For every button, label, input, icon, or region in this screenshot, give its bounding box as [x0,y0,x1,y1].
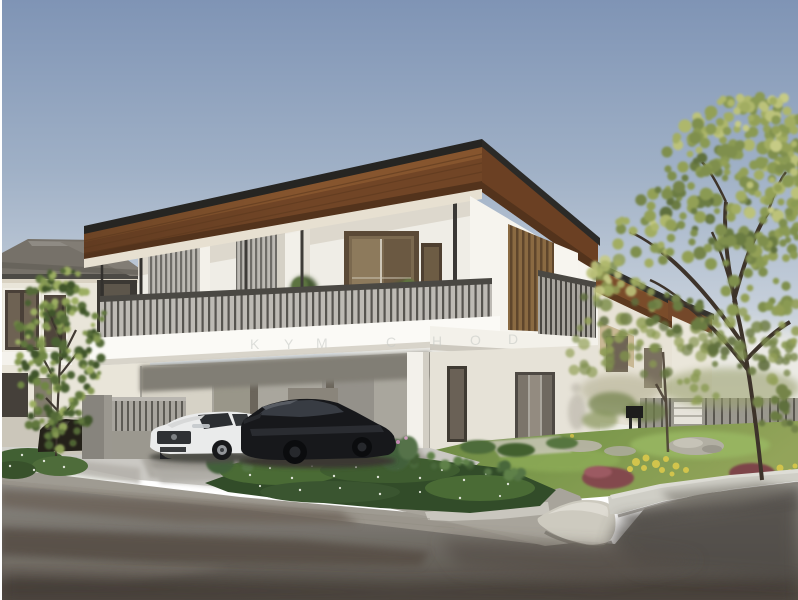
svg-text:D: D [508,331,518,347]
svg-text:H: H [432,333,442,349]
svg-text:O: O [470,332,481,348]
svg-text:M: M [316,335,328,351]
svg-text:C: C [386,334,396,350]
svg-text:Y: Y [284,336,294,352]
svg-text:K: K [250,336,260,352]
